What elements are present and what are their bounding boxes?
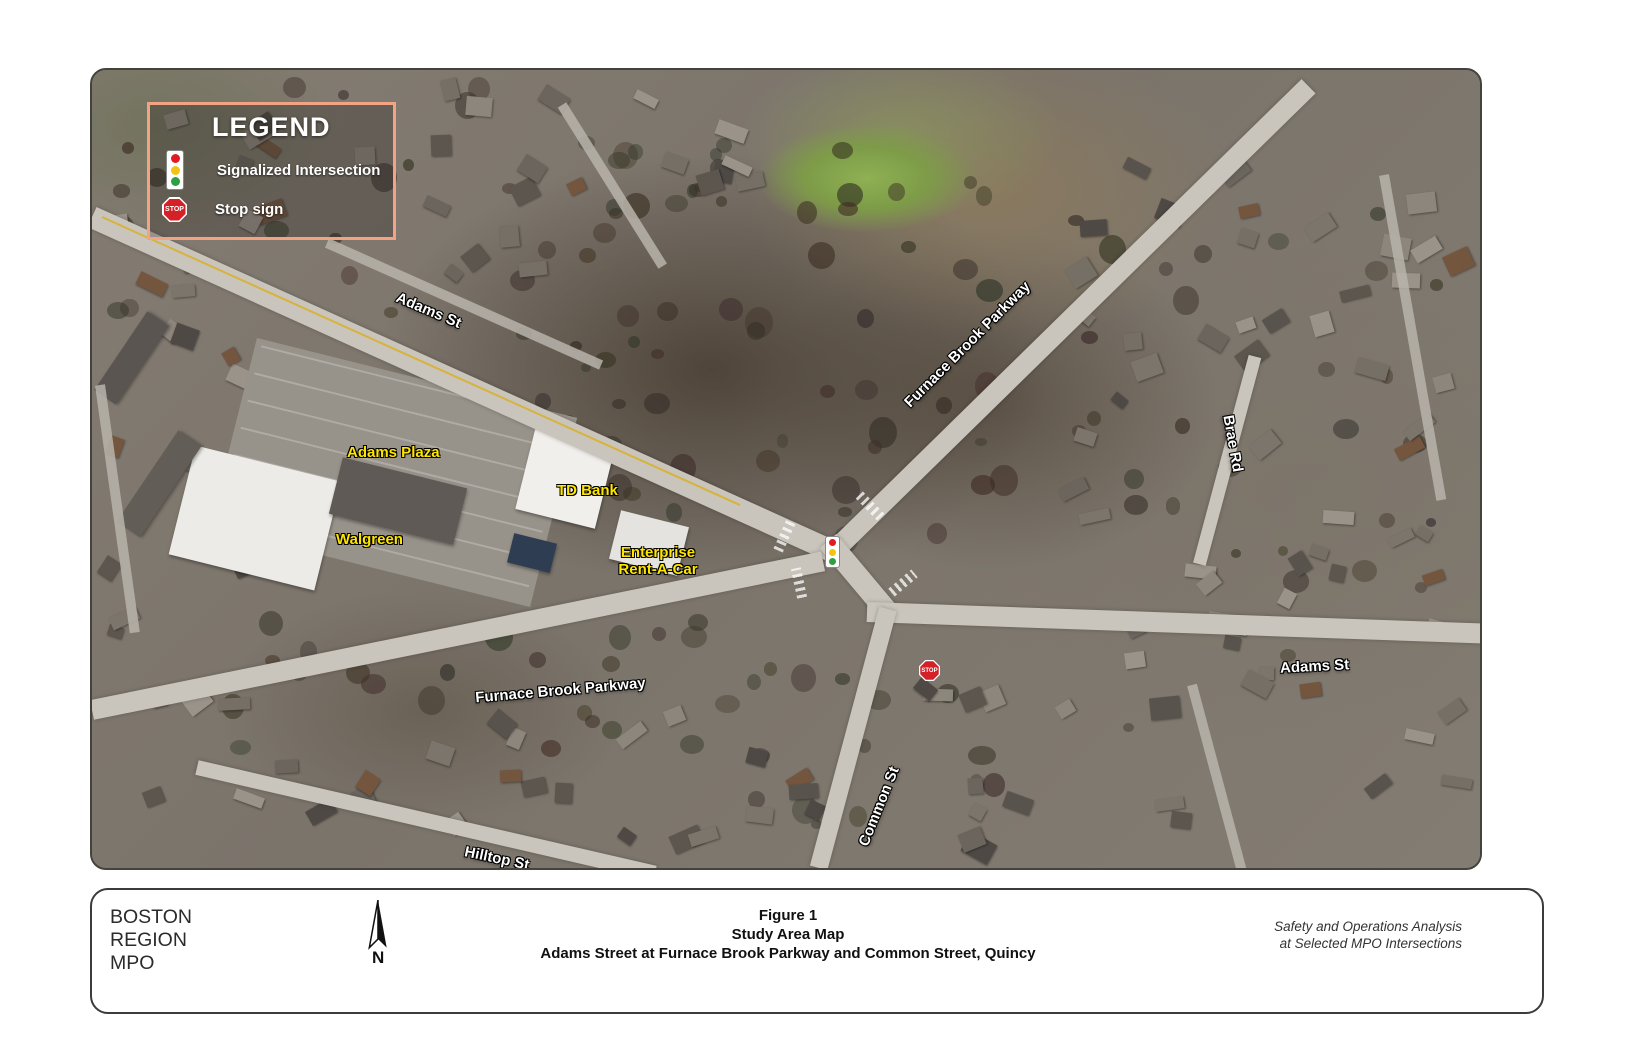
house-roof	[1123, 332, 1142, 351]
house-roof	[968, 777, 984, 794]
house-roof	[1261, 308, 1289, 334]
signalized-intersection-marker	[825, 536, 840, 568]
house-roof	[465, 95, 493, 116]
house-roof	[218, 697, 250, 711]
house-roof	[1122, 157, 1151, 179]
legend-title: LEGEND	[212, 112, 393, 143]
legend-signal-green	[171, 177, 180, 186]
house-roof	[1154, 796, 1185, 812]
figure-page: STOP Adams St Furnace Brook Parkway Brae…	[0, 0, 1632, 1056]
house-roof	[233, 789, 265, 810]
house-roof	[715, 119, 749, 144]
house-roof	[1079, 219, 1107, 237]
signal-yellow-light	[829, 549, 836, 556]
signal-red-light	[829, 539, 836, 546]
signal-green-light	[829, 558, 836, 565]
figure-title: Study Area Map	[540, 925, 1035, 944]
legend-item-stop-sign: Stop sign	[215, 201, 283, 218]
house-roof	[788, 783, 818, 800]
figure-subtitle: Adams Street at Furnace Brook Parkway an…	[540, 944, 1035, 963]
org-line-2: REGION	[110, 929, 192, 952]
org-line-3: MPO	[110, 952, 192, 975]
project-note-line1: Safety and Operations Analysis	[1274, 918, 1462, 935]
house-roof	[275, 759, 298, 773]
legend-stop-sign-text: STOP	[164, 199, 186, 221]
house-roof	[1058, 477, 1090, 502]
house-roof	[499, 226, 520, 249]
aerial-map: STOP Adams St Furnace Brook Parkway Brae…	[90, 68, 1482, 870]
house-roof	[1442, 247, 1475, 277]
north-label: N	[372, 948, 384, 968]
house-roof	[1249, 429, 1282, 460]
house-roof	[661, 151, 688, 174]
house-roof	[1237, 228, 1259, 248]
house-roof	[444, 264, 464, 283]
figure-footer: BOSTON REGION MPO N Figure 1 Study Area …	[90, 888, 1544, 1014]
house-roof	[1355, 357, 1390, 381]
north-arrow-icon: N	[364, 900, 404, 970]
house-roof	[1198, 324, 1230, 353]
place-label-enterprise-line1: Enterprise	[618, 544, 697, 561]
house-roof	[745, 747, 768, 768]
house-roof	[1111, 391, 1129, 409]
stop-sign-text: STOP	[920, 661, 938, 679]
stop-sign-icon: STOP	[162, 197, 187, 222]
house-roof	[1440, 775, 1472, 790]
place-label-enterprise-line2: Rent-A-Car	[618, 561, 697, 578]
legend-item-signalized-intersection: Signalized Intersection	[217, 162, 380, 179]
house-roof	[136, 271, 169, 296]
house-roof	[1387, 528, 1415, 549]
house-roof	[520, 777, 547, 798]
house-roof	[142, 786, 165, 808]
project-note: Safety and Operations Analysis at Select…	[1274, 918, 1462, 952]
house-roof	[1415, 525, 1433, 542]
project-note-line2: at Selected MPO Intersections	[1274, 935, 1462, 952]
house-roof	[1422, 569, 1446, 586]
house-roof	[439, 78, 460, 102]
street-label-adams-st-east: Adams St	[1280, 656, 1350, 677]
house-roof	[430, 134, 451, 156]
org-line-1: BOSTON	[110, 906, 192, 929]
legend: LEGEND Signalized Intersection STOP Stop…	[147, 102, 396, 240]
place-label-td-bank: TD Bank	[557, 482, 618, 499]
house-roof	[1323, 510, 1355, 525]
house-roof	[1437, 698, 1467, 725]
house-roof	[632, 89, 658, 109]
house-roof	[1309, 310, 1334, 337]
legend-signal-red	[171, 154, 180, 163]
house-roof	[172, 284, 196, 298]
house-roof	[519, 261, 549, 278]
house-roof	[1404, 728, 1434, 744]
house-roof	[1364, 774, 1392, 800]
house-roof	[1329, 564, 1347, 583]
traffic-signal-icon	[166, 150, 184, 190]
legend-signal-yellow	[171, 166, 180, 175]
house-roof	[500, 769, 521, 782]
house-roof	[423, 195, 452, 216]
figure-title-block: Figure 1 Study Area Map Adams Street at …	[540, 906, 1035, 963]
house-roof	[1124, 651, 1146, 670]
house-roof	[1170, 811, 1192, 830]
house-roof	[1276, 588, 1296, 610]
house-roof	[1304, 212, 1337, 242]
house-roof	[554, 782, 572, 803]
place-label-walgreen: Walgreen	[336, 531, 403, 548]
house-roof	[1054, 699, 1076, 720]
house-roof	[1002, 791, 1034, 815]
house-roof	[1149, 696, 1181, 721]
house-roof	[1406, 191, 1437, 214]
house-roof	[517, 154, 548, 183]
house-roof	[1131, 353, 1164, 382]
house-roof	[746, 805, 774, 824]
house-roof	[221, 347, 241, 367]
figure-number: Figure 1	[540, 906, 1035, 925]
house-roof	[1236, 317, 1257, 334]
house-roof	[566, 177, 587, 197]
house-roof	[1299, 681, 1322, 698]
house-roof	[1433, 373, 1456, 394]
house-roof	[617, 827, 637, 846]
org-name: BOSTON REGION MPO	[110, 906, 192, 975]
house-roof	[1238, 203, 1260, 218]
house-roof	[662, 705, 685, 727]
stop-sign-marker: STOP	[919, 660, 940, 681]
house-roof	[1073, 427, 1098, 447]
house-roof	[171, 323, 201, 351]
house-roof	[1309, 543, 1330, 560]
house-roof	[1078, 508, 1111, 525]
house-roof	[426, 740, 456, 766]
house-roof	[1223, 635, 1241, 651]
place-label-enterprise: Enterprise Rent-A-Car	[618, 544, 697, 578]
house-roof	[735, 171, 765, 191]
house-roof	[1339, 284, 1370, 302]
house-roof	[968, 803, 987, 822]
house-roof	[616, 721, 648, 749]
house-roof	[1411, 236, 1444, 264]
house-roof	[460, 243, 490, 273]
place-label-adams-plaza: Adams Plaza	[347, 444, 440, 461]
